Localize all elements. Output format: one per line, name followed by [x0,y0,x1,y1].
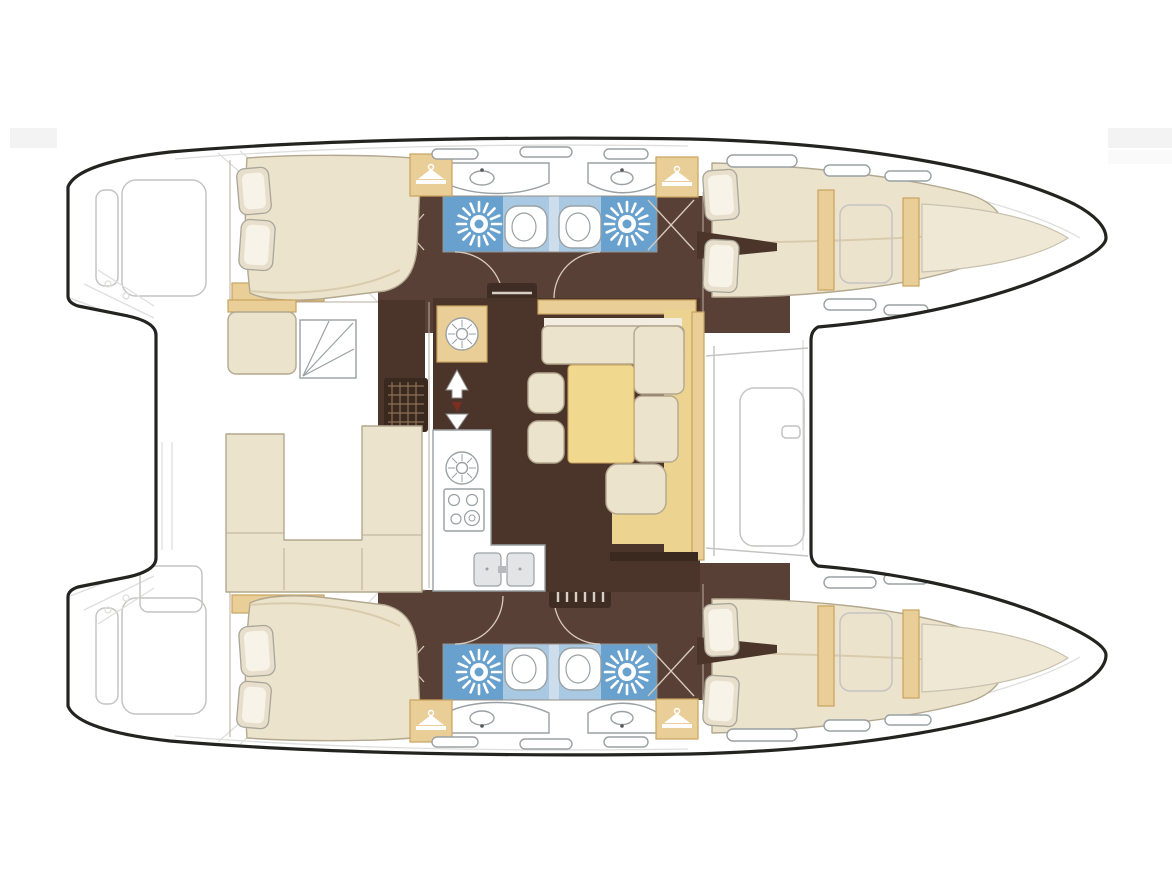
basin-sink [611,712,633,725]
bulkhead [903,610,919,698]
head-partition [549,644,559,700]
helm-seat-base [228,300,296,312]
watermark-right [1108,128,1172,148]
catamaran-floorplan [0,0,1172,879]
deck-grate [384,378,428,432]
shelf [610,552,698,561]
watermark-right-2 [1108,150,1172,164]
faucet [480,724,484,728]
watermark-left [10,128,57,148]
faucet [620,724,624,728]
bulkhead [903,198,919,286]
bulkhead [818,606,834,706]
pillow [238,625,275,677]
basin-sink [470,171,494,185]
sofa-bench [634,326,684,394]
galley-round-sink [446,318,478,350]
sofa-bench [634,396,678,462]
helm-seat [228,312,296,374]
pillow [703,239,740,293]
toilet [505,206,547,248]
pillow [236,681,272,730]
dinette-table [568,365,634,463]
shower-drain-icon [457,202,501,246]
pillow [236,167,272,216]
faucet [620,168,624,172]
vanity-basin [445,163,549,194]
forward-bulkhead [692,312,704,560]
floorplan-canvas [0,0,1172,879]
stool [528,421,564,463]
seat-platform [612,510,666,544]
pillow [702,675,739,727]
pillow [703,603,740,657]
faucet [480,168,484,172]
stool [528,373,564,413]
bulkhead [818,190,834,290]
toilet [505,648,547,690]
worktop-round-sink [446,452,478,484]
head-partition [549,196,559,252]
lounge-cushion [606,464,666,514]
shower-drain-icon [605,202,649,246]
vanity-basin [445,703,549,734]
gas-stove [444,489,484,531]
pillow [702,169,739,221]
cockpit-steps [300,320,356,378]
shower-drain-icon [605,650,649,694]
basin-sink [470,711,494,725]
faucet [498,566,506,573]
pillow [238,219,275,271]
toilet [559,648,601,690]
toilet [559,206,601,248]
shower-drain-icon [457,650,501,694]
basin-sink [611,172,633,185]
